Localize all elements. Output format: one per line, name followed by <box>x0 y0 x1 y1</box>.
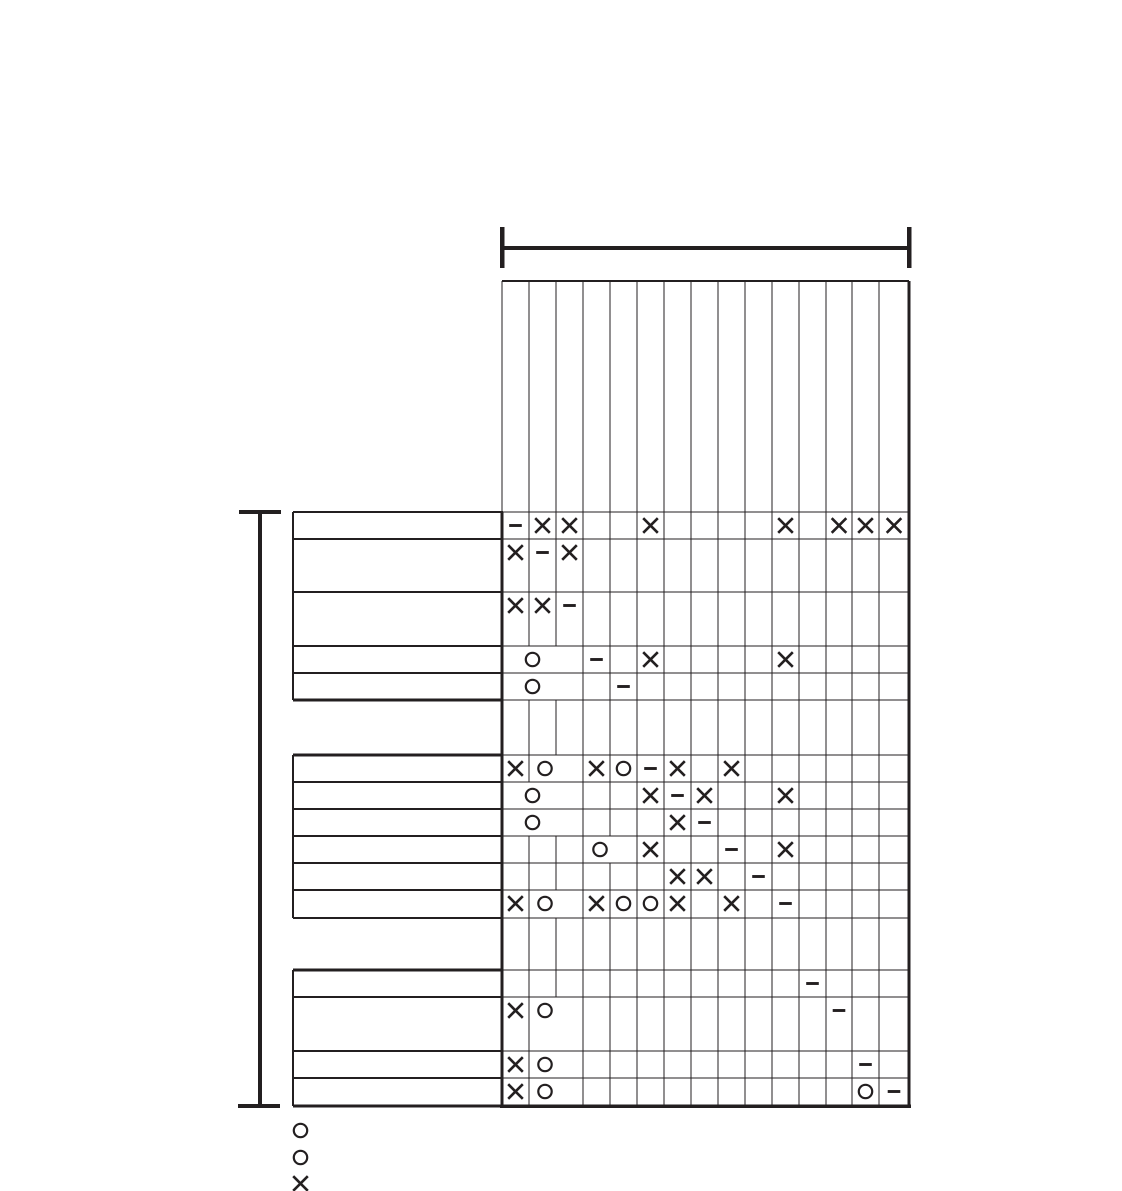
symbol-x-mark <box>643 788 658 803</box>
symbol-circle <box>644 897 657 910</box>
symbol-circle <box>617 897 630 910</box>
symbol-circle <box>538 897 551 910</box>
symbol-circle <box>538 1058 551 1071</box>
symbol-x-mark <box>643 652 658 667</box>
column-span-bracket <box>502 227 909 268</box>
symbol-x-mark <box>887 518 902 533</box>
symbol-x-mark <box>724 761 739 776</box>
legend <box>293 1124 308 1191</box>
symbol-x-mark <box>508 761 523 776</box>
matrix-figure <box>0 0 1122 1191</box>
symbol-circle <box>526 653 539 666</box>
symbol-circle <box>538 1085 551 1098</box>
symbol-circle <box>538 762 551 775</box>
symbol-x-mark <box>670 869 685 884</box>
symbol-x-mark <box>724 896 739 911</box>
symbol-x-mark <box>778 652 793 667</box>
symbol-x-mark <box>670 896 685 911</box>
symbol-x-mark <box>778 518 793 533</box>
symbol-x-mark <box>697 869 712 884</box>
symbol-x-mark <box>293 1176 308 1191</box>
symbol-circle <box>859 1085 872 1098</box>
symbol-x-mark <box>508 1003 523 1018</box>
symbol-x-mark <box>589 896 604 911</box>
symbol-x-mark <box>508 1084 523 1099</box>
symbol-circle <box>538 1004 551 1017</box>
symbol-x-mark <box>643 518 658 533</box>
symbol-x-mark <box>508 545 523 560</box>
row-label-boxes <box>293 512 503 1106</box>
symbol-x-mark <box>670 761 685 776</box>
row-span-bracket <box>238 512 281 1106</box>
symbol-x-mark <box>508 896 523 911</box>
symbol-x-mark <box>858 518 873 533</box>
symbol-circle <box>526 680 539 693</box>
symbol-circle <box>617 762 630 775</box>
symbol-circle <box>593 843 606 856</box>
symbol-x-mark <box>508 598 523 613</box>
symbol-x-mark <box>778 842 793 857</box>
symbol-x-mark <box>535 598 550 613</box>
symbol-x-mark <box>778 788 793 803</box>
symbol-circle <box>294 1124 307 1137</box>
symbol-x-mark <box>535 518 550 533</box>
symbol-circle <box>526 789 539 802</box>
symbol-x-mark <box>697 788 712 803</box>
symbol-circle <box>294 1151 307 1164</box>
symbol-x-mark <box>643 842 658 857</box>
symbol-x-mark <box>832 518 847 533</box>
symbol-x-mark <box>670 815 685 830</box>
symbol-x-mark <box>589 761 604 776</box>
symbol-x-mark <box>562 518 577 533</box>
symbol-circle <box>526 816 539 829</box>
symbol-x-mark <box>508 1057 523 1072</box>
symbol-x-mark <box>562 545 577 560</box>
grid-lines <box>500 281 911 1106</box>
page <box>0 0 1122 1191</box>
